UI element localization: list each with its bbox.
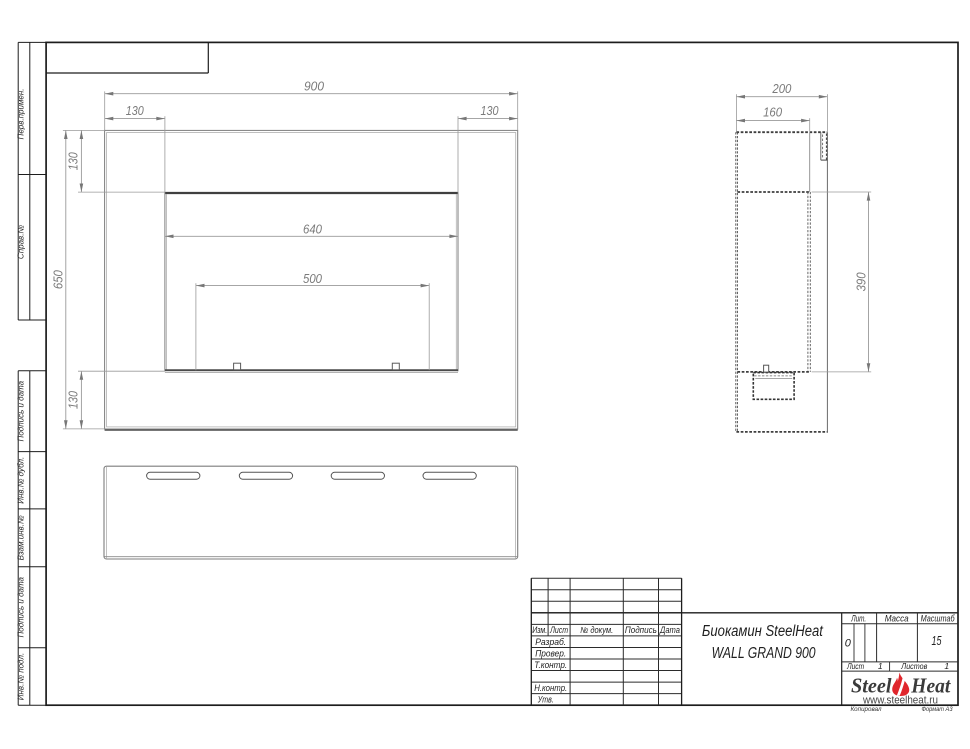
svg-text:Инв.№ дубл.: Инв.№ дубл.: [17, 457, 26, 504]
svg-text:130: 130: [126, 103, 145, 118]
svg-text:Лит.: Лит.: [850, 614, 866, 624]
svg-text:160: 160: [763, 105, 783, 120]
svg-text:Подпись и дата: Подпись и дата: [17, 380, 26, 441]
svg-text:130: 130: [65, 390, 80, 409]
svg-text:Формат А3: Формат А3: [922, 706, 953, 713]
svg-text:Перв.примен.: Перв.примен.: [17, 89, 26, 140]
svg-text:900: 900: [304, 79, 325, 94]
svg-text:Масса: Масса: [885, 614, 909, 624]
svg-text:Справ.№: Справ.№: [17, 225, 26, 259]
svg-text:15: 15: [932, 634, 942, 648]
svg-text:Лист: Лист: [846, 661, 864, 671]
svg-text:1: 1: [944, 661, 949, 671]
svg-text:Листов: Листов: [900, 661, 927, 671]
svg-text:Т.контр.: Т.контр.: [534, 660, 567, 670]
svg-text:Разраб.: Разраб.: [535, 637, 566, 647]
svg-text:№ докум.: № докум.: [580, 625, 613, 635]
svg-text:Подпись и дата: Подпись и дата: [17, 576, 26, 637]
svg-text:Масштаб: Масштаб: [921, 614, 956, 624]
svg-text:Копировал: Копировал: [851, 706, 882, 713]
svg-text:Взам.инв.№: Взам.инв.№: [17, 515, 26, 560]
svg-text:WALL GRAND 900: WALL GRAND 900: [712, 645, 816, 662]
svg-text:Биокамин SteelHeat: Биокамин SteelHeat: [702, 623, 824, 640]
svg-text:650: 650: [51, 269, 66, 289]
svg-text:www.steelheat.ru: www.steelheat.ru: [862, 695, 938, 707]
svg-text:1: 1: [878, 661, 883, 671]
svg-text:0: 0: [845, 637, 852, 649]
svg-text:Подпись: Подпись: [625, 625, 657, 635]
svg-text:500: 500: [303, 271, 323, 286]
svg-text:Инв.№ подл.: Инв.№ подл.: [17, 653, 26, 700]
svg-text:Лист: Лист: [549, 625, 568, 635]
svg-text:130: 130: [65, 152, 80, 171]
svg-text:Дата: Дата: [659, 625, 680, 635]
svg-text:130: 130: [481, 103, 500, 118]
svg-text:Утв.: Утв.: [537, 694, 554, 704]
svg-text:390: 390: [854, 272, 869, 292]
svg-text:Изм.: Изм.: [532, 625, 547, 635]
svg-text:Н.контр.: Н.контр.: [534, 683, 567, 693]
svg-text:Провер.: Провер.: [535, 648, 566, 658]
svg-text:640: 640: [303, 221, 323, 236]
svg-text:200: 200: [772, 81, 793, 96]
